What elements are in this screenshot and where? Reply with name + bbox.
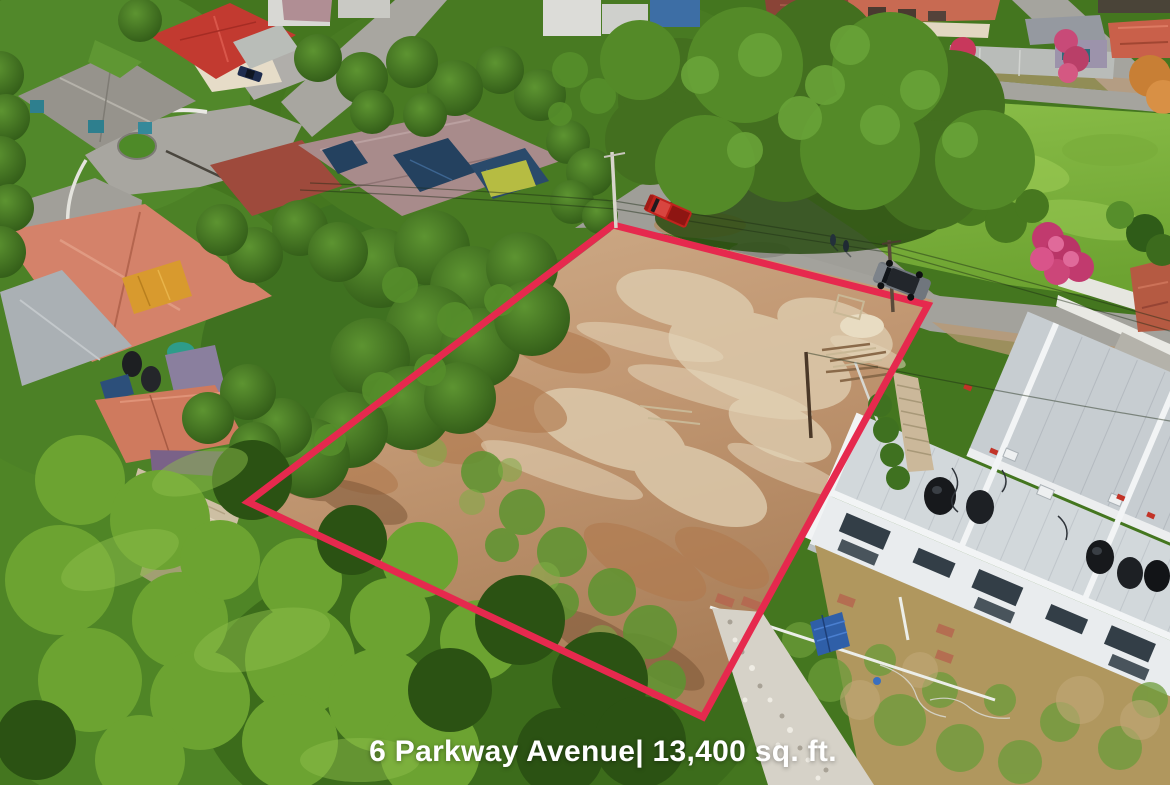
aerial-photo-canvas bbox=[0, 0, 1170, 785]
listing-caption: 6 Parkway Avenue| 13,400 sq. ft. bbox=[369, 735, 837, 769]
aerial-photo: 6 Parkway Avenue| 13,400 sq. ft. bbox=[0, 0, 1170, 785]
